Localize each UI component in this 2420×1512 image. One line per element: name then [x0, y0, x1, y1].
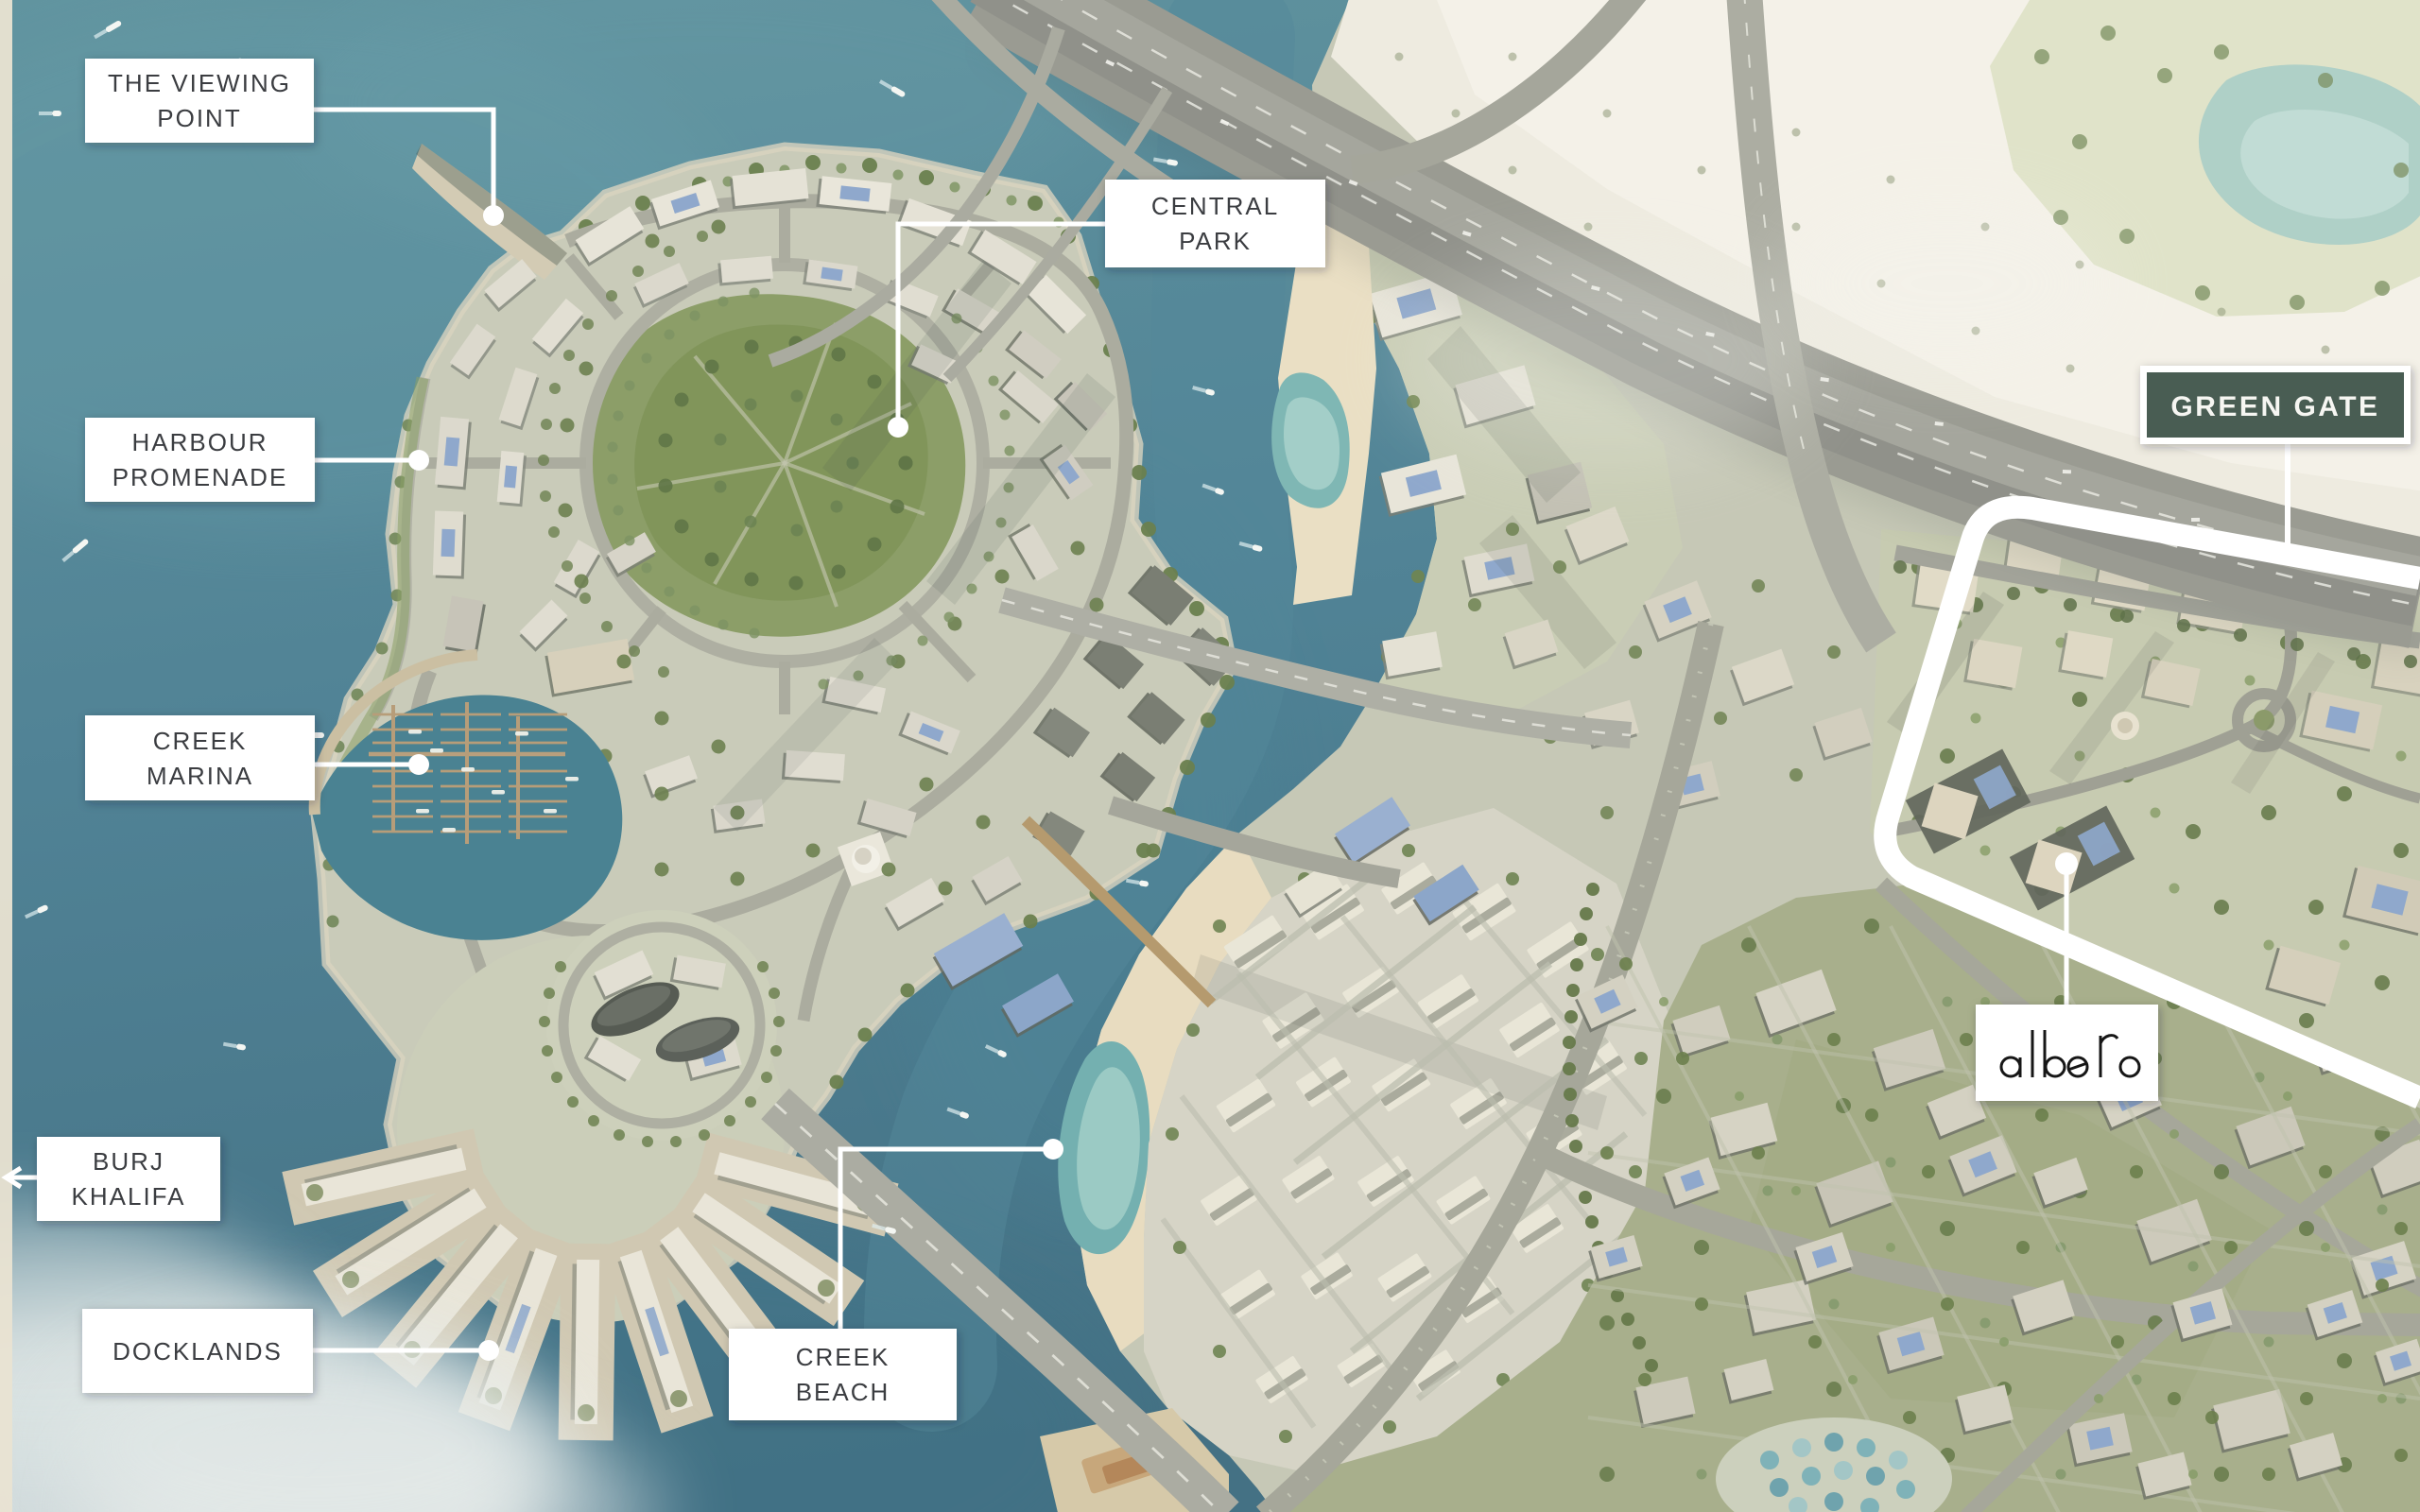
svg-text:MARINA: MARINA	[147, 762, 253, 790]
svg-text:GREEN GATE: GREEN GATE	[2170, 391, 2379, 422]
svg-text:PROMENADE: PROMENADE	[112, 463, 288, 491]
svg-text:THE VIEWING: THE VIEWING	[108, 69, 291, 97]
svg-text:CENTRAL: CENTRAL	[1151, 192, 1279, 220]
svg-text:DOCKLANDS: DOCKLANDS	[112, 1337, 283, 1366]
svg-text:POINT: POINT	[157, 104, 241, 132]
svg-text:PARK: PARK	[1179, 227, 1252, 255]
svg-text:KHALIFA: KHALIFA	[72, 1182, 186, 1211]
svg-text:BURJ: BURJ	[93, 1147, 164, 1176]
svg-text:CREEK: CREEK	[796, 1343, 890, 1371]
svg-text:CREEK: CREEK	[153, 727, 248, 755]
svg-text:HARBOUR: HARBOUR	[131, 428, 268, 456]
svg-text:BEACH: BEACH	[796, 1378, 890, 1406]
